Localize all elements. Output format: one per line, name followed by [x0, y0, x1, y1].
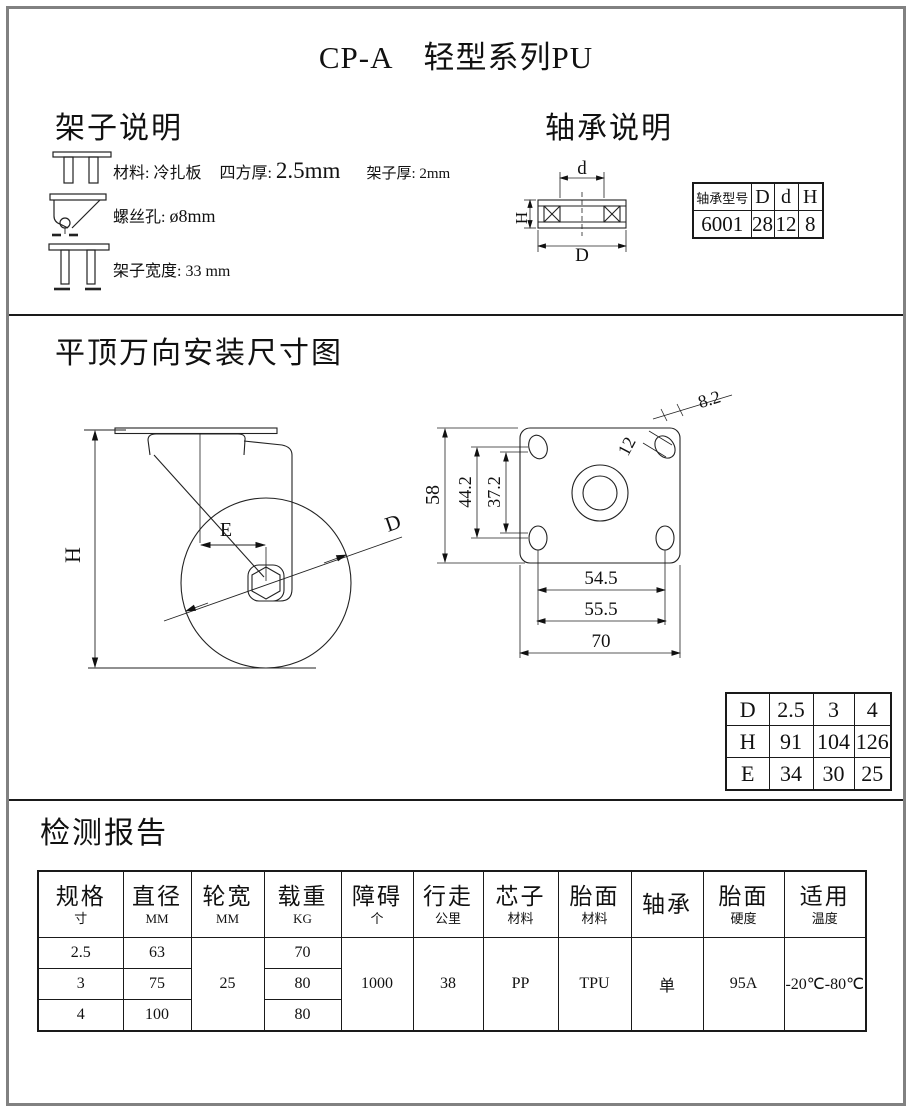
caster-dim-E-label: E [220, 519, 232, 541]
bearing-D-value: 28 [751, 211, 774, 239]
plate-dim-37-2-label: 37.2 [484, 476, 504, 508]
title-code: CP-A [319, 40, 394, 75]
col-header-temperature: 适用温度 [784, 871, 866, 938]
dhe-D-v3: 4 [854, 693, 891, 726]
bearing-model-header: 轴承型号 [693, 183, 751, 211]
page-title: CP-A轻型系列PU [0, 32, 912, 77]
diameter-cell: 100 [123, 1000, 191, 1032]
dhe-row-E: E 34 30 25 [726, 758, 891, 791]
load-cell: 80 [264, 969, 341, 1000]
bearing-type-cell: 单 [631, 938, 703, 1032]
bearing-spec-heading: 轴承说明 [545, 103, 673, 147]
frame-width-label: 架子宽度: [113, 263, 181, 280]
bearing-dim-D-label: D [575, 245, 589, 266]
distance-cell: 38 [413, 938, 483, 1032]
col-header-obstacle: 障碍个 [341, 871, 413, 938]
frame-front-view-diagram [48, 242, 114, 298]
mounting-heading: 平顶万向安装尺寸图 [55, 328, 343, 372]
dhe-E-v3: 25 [854, 758, 891, 791]
load-cell: 70 [264, 938, 341, 969]
frame-material-note: 材料: 冷扎板 四方厚: 2.5mm 架子厚: 2mm [113, 158, 450, 184]
dhe-D-label: D [726, 693, 769, 726]
material-text: 材料: 冷扎板 [113, 165, 201, 182]
frame-width-value: 33 mm [185, 263, 230, 280]
dhe-H-label: H [726, 726, 769, 758]
plate-top-view-diagram: 58 44.2 37.2 12 8.2 54.5 55.5 70 [425, 385, 735, 685]
col-header-distance: 行走公里 [413, 871, 483, 938]
square-thickness-value: 2.5mm [276, 158, 341, 183]
dhe-H-v3: 126 [854, 726, 891, 758]
frame-width-note: 架子宽度: 33 mm [113, 257, 230, 281]
bearing-H-value: 8 [798, 211, 823, 239]
square-thickness-label: 四方厚: [219, 165, 271, 182]
frame-top-view-diagram [52, 150, 114, 190]
load-cell: 80 [264, 1000, 341, 1032]
bearing-H-header: H [798, 183, 823, 211]
size-cell: 4 [38, 1000, 123, 1032]
bearing-diagram: d H D [522, 160, 647, 265]
dhe-row-D: D 2.5 3 4 [726, 693, 891, 726]
plate-dim-55-5-label: 55.5 [584, 599, 617, 620]
col-header-bearing: 轴承 [631, 871, 703, 938]
dhe-E-v1: 34 [769, 758, 813, 791]
dhe-size-table: D 2.5 3 4 H 91 104 126 E 34 30 25 [725, 692, 892, 791]
dhe-D-v2: 3 [813, 693, 854, 726]
plate-dim-70-label: 70 [592, 631, 611, 652]
col-header-hardness: 胎面硬度 [703, 871, 784, 938]
dhe-E-label: E [726, 758, 769, 791]
bearing-d-header: d [774, 183, 798, 211]
core-material-cell: PP [483, 938, 558, 1032]
wheel-width-cell: 25 [191, 938, 264, 1032]
col-header-diameter: 直径MM [123, 871, 191, 938]
caster-dim-D-label: D [382, 509, 404, 537]
col-header-wheel-width: 轮宽MM [191, 871, 264, 938]
bearing-dim-d-label: d [577, 158, 587, 179]
report-row-1: 2.5 63 25 70 1000 38 PP TPU 单 95A -20℃-8… [38, 938, 866, 969]
bearing-D-header: D [751, 183, 774, 211]
frame-side-view-diagram [48, 192, 118, 240]
frame-thickness-text: 架子厚: 2mm [366, 166, 450, 182]
col-header-tread: 胎面材料 [558, 871, 631, 938]
bearing-table: 轴承型号 D d H 6001 28 12 8 [692, 182, 824, 239]
size-cell: 3 [38, 969, 123, 1000]
col-header-load: 载重KG [264, 871, 341, 938]
caster-side-view-diagram: H E D [68, 405, 413, 695]
diameter-cell: 75 [123, 969, 191, 1000]
bearing-table-header-row: 轴承型号 D d H [693, 183, 823, 211]
section-divider-1 [9, 314, 903, 316]
plate-dim-12-label: 12 [614, 434, 640, 459]
dhe-D-v1: 2.5 [769, 693, 813, 726]
frame-spec-heading: 架子说明 [55, 103, 183, 147]
size-cell: 2.5 [38, 938, 123, 969]
dhe-H-v1: 91 [769, 726, 813, 758]
plate-dim-8-2-label: 8.2 [696, 386, 723, 412]
bearing-table-data-row: 6001 28 12 8 [693, 211, 823, 239]
plate-dim-44-2-label: 44.2 [455, 476, 475, 508]
tread-material-cell: TPU [558, 938, 631, 1032]
screw-hole-note: 螺丝孔: ø8mm [113, 203, 215, 227]
dhe-E-v2: 30 [813, 758, 854, 791]
screw-hole-value: ø8mm [169, 206, 215, 226]
dhe-row-H: H 91 104 126 [726, 726, 891, 758]
bearing-dim-H-label: H [512, 212, 531, 224]
screw-hole-label: 螺丝孔: [113, 209, 165, 226]
obstacle-cell: 1000 [341, 938, 413, 1032]
dhe-H-v2: 104 [813, 726, 854, 758]
report-heading: 检测报告 [40, 808, 168, 852]
plate-dim-58-label: 58 [422, 485, 444, 505]
plate-dim-54-5-label: 54.5 [584, 568, 617, 589]
tread-hardness-cell: 95A [703, 938, 784, 1032]
temperature-cell: -20℃-80℃ [784, 938, 866, 1032]
col-header-size: 规格寸 [38, 871, 123, 938]
bearing-model-value: 6001 [693, 211, 751, 239]
caster-dim-H-label: H [60, 547, 85, 563]
title-series: 轻型系列PU [424, 40, 594, 75]
report-header-row: 规格寸 直径MM 轮宽MM 载重KG 障碍个 行走公里 芯子材料 胎面材料 轴承… [38, 871, 866, 938]
col-header-core: 芯子材料 [483, 871, 558, 938]
diameter-cell: 63 [123, 938, 191, 969]
test-report-table: 规格寸 直径MM 轮宽MM 载重KG 障碍个 行走公里 芯子材料 胎面材料 轴承… [37, 870, 867, 1032]
bearing-d-value: 12 [774, 211, 798, 239]
section-divider-2 [9, 799, 903, 801]
